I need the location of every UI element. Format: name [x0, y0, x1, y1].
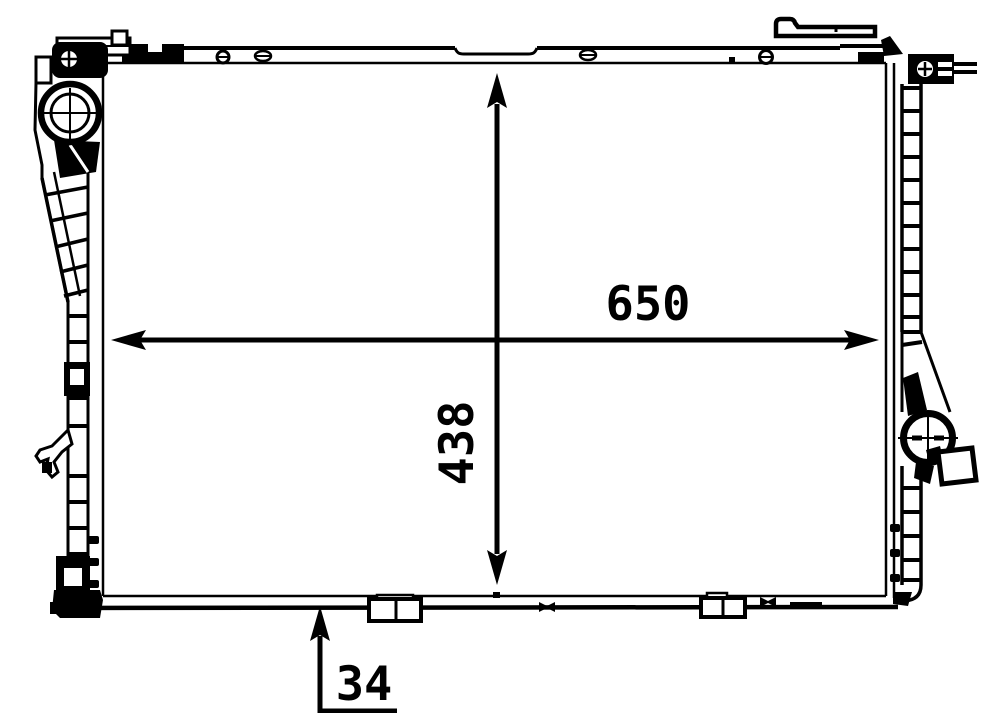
- dimension-depth-label: 34: [336, 657, 393, 712]
- outlet-bracket: [938, 448, 976, 484]
- filler-neck: [39, 82, 101, 144]
- dimension-width-label: 650: [606, 277, 691, 332]
- radiator-technical-drawing: 650 438 34: [0, 0, 1000, 713]
- dimension-height-label: 438: [430, 401, 485, 486]
- drawing-canvas: 650 438 34: [0, 0, 1000, 713]
